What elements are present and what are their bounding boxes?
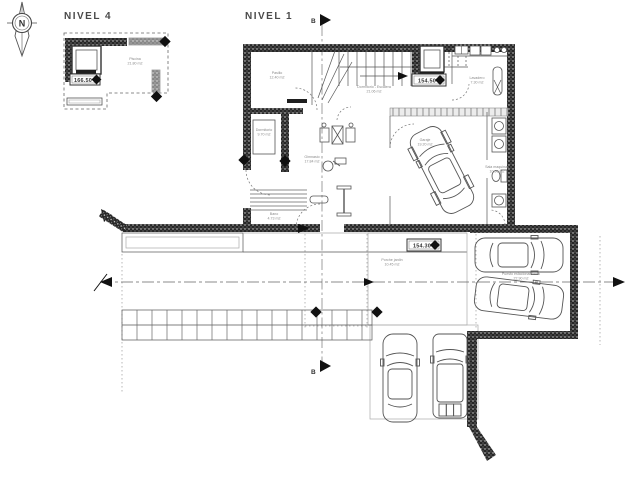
stove-burner-icon <box>494 47 499 52</box>
section-letter-top: B <box>311 18 316 25</box>
nivel1-walls <box>99 44 578 461</box>
svg-text:10.45 m2: 10.45 m2 <box>385 263 400 267</box>
pool-label: Piscina <box>129 57 141 61</box>
utility-fixtures <box>492 118 507 207</box>
nivel4-plan: NIVEL 4 166.50 Piscina 21.80 m2 <box>64 11 171 109</box>
svg-text:19.20 m2: 19.20 m2 <box>418 143 433 147</box>
ironing-board <box>493 67 502 95</box>
svg-text:12.40 m2: 12.40 m2 <box>270 76 285 80</box>
elevation-value: 154.50 <box>418 79 436 85</box>
compass-letter: N <box>19 19 26 29</box>
lower-court-outline <box>370 325 478 419</box>
svg-text:10.90 m2: 10.90 m2 <box>490 170 505 174</box>
svg-text:Pasillo: Pasillo <box>272 71 283 75</box>
svg-text:17.84 m2: 17.84 m2 <box>305 160 320 164</box>
parking-car-right-1 <box>475 236 563 275</box>
nivel4-planter <box>67 98 102 105</box>
nivel4-elevation-value: 166.50 <box>74 78 92 84</box>
elevation-value: 154.30 <box>413 244 431 250</box>
svg-text:Dormitorio - Escalera: Dormitorio - Escalera <box>357 85 391 89</box>
svg-text:9.70 m2: 9.70 m2 <box>258 133 271 137</box>
site-lines <box>94 209 625 419</box>
svg-text:Bano: Bano <box>270 212 278 216</box>
garage-window-band <box>390 108 508 116</box>
axis-diamond-icon <box>310 306 321 317</box>
nivel1-elevator-shaft <box>412 44 444 77</box>
paver-grid-strip <box>122 310 372 340</box>
garage-car <box>403 121 480 218</box>
axis-diamond-icon <box>371 306 382 317</box>
axis-arrow-left-icon <box>100 277 112 287</box>
svg-text:Sala maquinas: Sala maquinas <box>485 165 509 169</box>
svg-text:Puesto estacionamiento: Puesto estacionamiento <box>502 272 540 276</box>
section-arrow-top-icon <box>320 14 331 26</box>
svg-text:Garaje: Garaje <box>420 138 431 142</box>
section-letter-bottom: B <box>311 369 316 376</box>
north-compass-icon: N <box>7 2 37 56</box>
bed-icon <box>253 120 275 154</box>
floor-plan-sheet: N NIVEL 4 166.50 Piscina <box>0 0 640 480</box>
svg-text:Dormitorio: Dormitorio <box>256 128 273 132</box>
nivel1-title: NIVEL 1 <box>245 11 293 22</box>
svg-text:7.30 m2: 7.30 m2 <box>471 81 484 85</box>
svg-text:Lavadero: Lavadero <box>470 76 485 80</box>
svg-text:Porche jardin: Porche jardin <box>381 258 402 262</box>
nivel4-beam-top <box>129 36 171 47</box>
nivel1-elevation-marker-terrace: 154.30 <box>407 239 441 251</box>
nivel4-beam-right <box>151 70 162 102</box>
nivel4-title: NIVEL 4 <box>64 11 112 22</box>
court-car-sedan <box>381 334 420 422</box>
svg-text:21.06 m2: 21.06 m2 <box>367 90 382 94</box>
svg-text:22.90 m2: 22.90 m2 <box>514 277 529 281</box>
ramp-planter <box>122 233 243 252</box>
exterior-steps <box>250 190 307 210</box>
nivel4-wall-top <box>65 38 127 46</box>
sink-icon <box>495 196 504 205</box>
section-line-bb: B B <box>311 14 331 376</box>
axis-arrow-mid-icon <box>364 278 374 286</box>
nivel4-elevation-marker: 166.50 <box>70 74 101 85</box>
court-car-suv <box>431 334 470 418</box>
stair-direction-arrow-icon <box>398 72 408 80</box>
stove-burner-icon <box>501 47 506 52</box>
svg-text:Gimnasio: Gimnasio <box>304 155 319 159</box>
section-arrow-bottom-icon <box>320 360 331 372</box>
nivel4-elevator-shaft <box>72 46 101 74</box>
svg-text:4.73 m2: 4.73 m2 <box>268 217 281 221</box>
parking-car-right-2 <box>473 273 565 322</box>
axis-arrow-right-icon <box>613 277 625 287</box>
pool-area: 21.80 m2 <box>128 62 143 66</box>
gym-equipment <box>310 123 355 216</box>
nivel1-elevation-marker-main: 154.50 <box>412 74 446 86</box>
floor-plan-drawing: N NIVEL 4 166.50 Piscina <box>0 0 640 480</box>
